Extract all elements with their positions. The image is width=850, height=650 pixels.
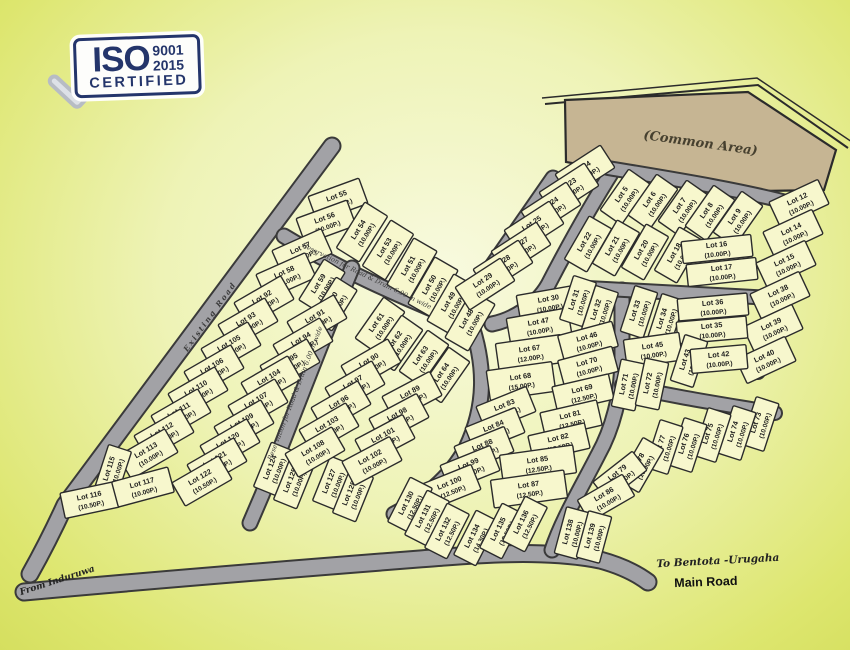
iso-text: ISO [92, 41, 150, 78]
lot-parcel-shape [690, 345, 748, 374]
road-bottom-main [24, 554, 648, 592]
iso-badge-box: ISO 9001 2015 CERTIFIED [73, 34, 202, 98]
plot-map-stage: (Common Area) Lot 55(10.00P.)Lot 56(10.0… [0, 0, 850, 650]
lot-parcel: Lot 42(10.00P.) [690, 345, 748, 374]
iso-year-text: 2015 [153, 57, 185, 73]
main-road-label: Main Road [674, 574, 738, 590]
iso-badge: ISO 9001 2015 CERTIFIED [51, 29, 232, 113]
certified-text: CERTIFIED [89, 73, 188, 91]
road-bottom-main-surface [24, 554, 648, 592]
to-bentota-label: To Bentota -Urugaha [656, 552, 780, 570]
